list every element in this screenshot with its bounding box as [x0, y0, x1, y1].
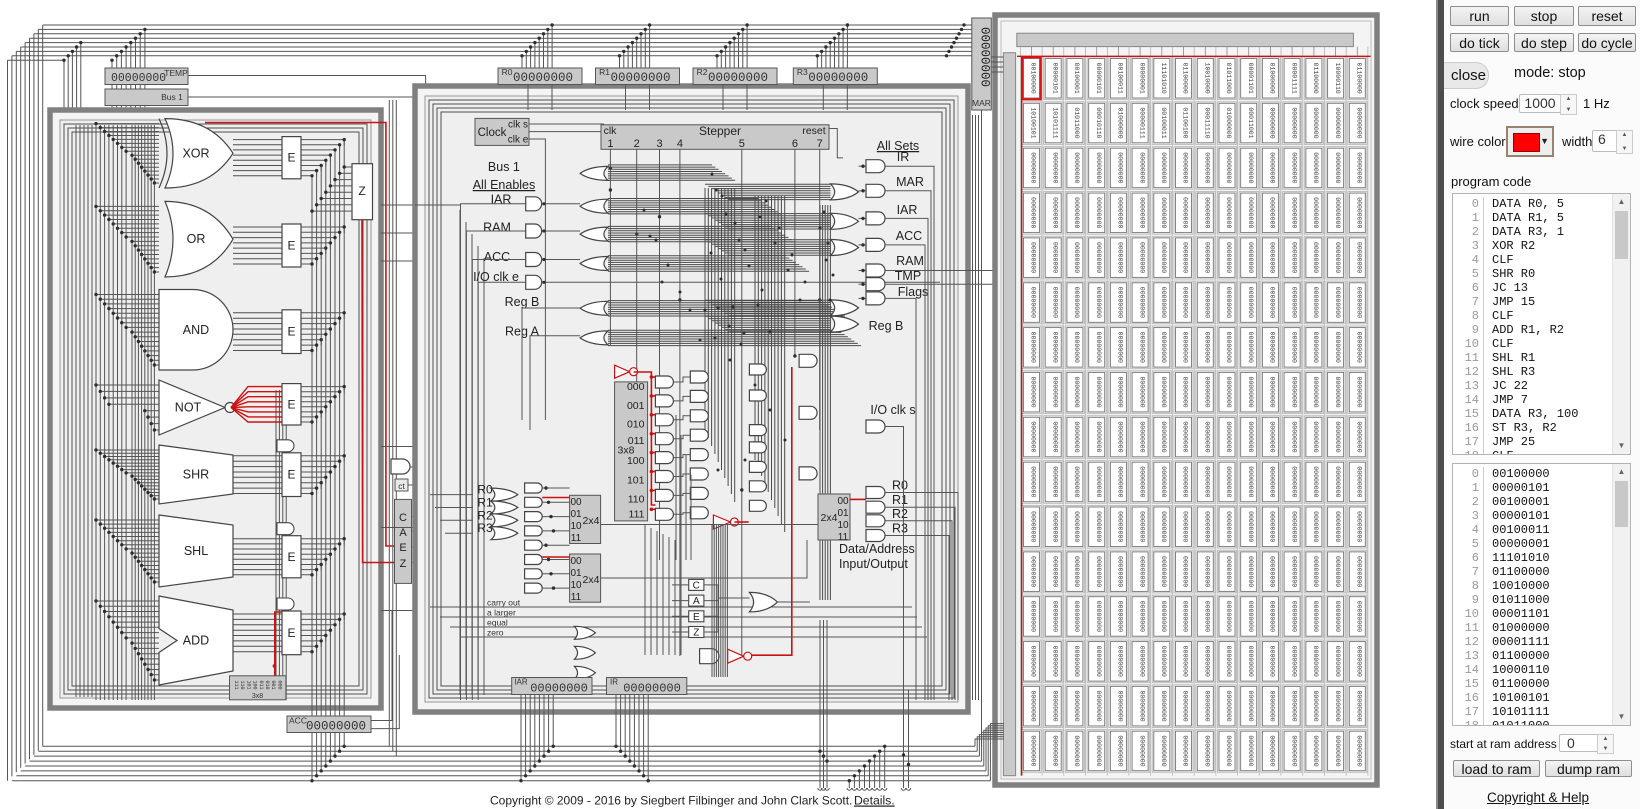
- svg-text:00000000: 00000000: [1117, 556, 1124, 587]
- svg-text:R2: R2: [892, 507, 908, 521]
- svg-text:01100000: 01100000: [1312, 63, 1319, 94]
- svg-text:00000000: 00000000: [1269, 376, 1276, 407]
- svg-text:00000000: 00000000: [1225, 690, 1232, 721]
- svg-text:00000000: 00000000: [1160, 690, 1167, 721]
- svg-text:00000000: 00000000: [1225, 242, 1232, 273]
- svg-text:00000000: 00000000: [1247, 376, 1254, 407]
- svg-text:R1: R1: [892, 493, 908, 507]
- svg-text:100: 100: [627, 455, 645, 467]
- svg-text:XOR: XOR: [182, 146, 209, 160]
- svg-text:00000000: 00000000: [1030, 690, 1037, 721]
- svg-text:00000000: 00000000: [1247, 287, 1254, 318]
- svg-text:00000000: 00000000: [1334, 332, 1341, 363]
- svg-text:00000000: 00000000: [1073, 197, 1080, 228]
- svg-text:00000000: 00000000: [1269, 152, 1276, 183]
- svg-text:00000000: 00000000: [1117, 690, 1124, 721]
- svg-text:00000000: 00000000: [1312, 376, 1319, 407]
- svg-text:00000000: 00000000: [1204, 376, 1211, 407]
- svg-text:101: 101: [627, 475, 645, 487]
- svg-text:00000000: 00000000: [1030, 152, 1037, 183]
- svg-text:00000000: 00000000: [1312, 556, 1319, 587]
- svg-text:00000000: 00000000: [610, 71, 670, 85]
- svg-text:AND: AND: [183, 323, 209, 337]
- svg-text:00000000: 00000000: [1225, 511, 1232, 542]
- svg-text:Reg B: Reg B: [505, 295, 540, 309]
- svg-text:R3: R3: [477, 521, 493, 535]
- svg-text:00000000: 00000000: [1312, 466, 1319, 497]
- svg-text:00000000: 00000000: [1138, 511, 1145, 542]
- svg-text:00000000: 00000000: [1182, 152, 1189, 183]
- svg-text:00000000: 00000000: [1138, 421, 1145, 452]
- svg-text:00000000: 00000000: [1247, 197, 1254, 228]
- svg-text:equal: equal: [487, 618, 508, 628]
- svg-text:00000000: 00000000: [1290, 646, 1297, 677]
- svg-text:00000000: 00000000: [1117, 421, 1124, 452]
- svg-text:00000000: 00000000: [1204, 466, 1211, 497]
- svg-text:00000000: 00000000: [1312, 421, 1319, 452]
- svg-text:00000000: 00000000: [978, 27, 992, 87]
- svg-text:2x4: 2x4: [583, 515, 600, 527]
- svg-text:R0: R0: [502, 67, 513, 77]
- svg-text:00000000: 00000000: [1225, 421, 1232, 452]
- svg-text:reset: reset: [802, 125, 825, 137]
- svg-text:00000000: 00000000: [1334, 107, 1341, 138]
- svg-text:00000000: 00000000: [1312, 152, 1319, 183]
- svg-text:A: A: [693, 596, 700, 607]
- svg-text:00000000: 00000000: [1117, 287, 1124, 318]
- svg-text:00011001: 00011001: [1247, 107, 1254, 138]
- svg-text:10: 10: [570, 521, 582, 532]
- svg-text:00000000: 00000000: [1030, 646, 1037, 677]
- svg-text:00000000: 00000000: [1030, 332, 1037, 363]
- svg-text:00000000: 00000000: [1269, 107, 1276, 138]
- svg-text:00000000: 00000000: [1269, 466, 1276, 497]
- svg-text:00000000: 00000000: [1051, 332, 1058, 363]
- svg-text:10101111: 10101111: [1051, 107, 1058, 138]
- svg-text:00000000: 00000000: [1073, 601, 1080, 632]
- svg-text:E: E: [287, 325, 295, 339]
- svg-text:E: E: [287, 550, 295, 564]
- svg-text:00000000: 00000000: [1138, 646, 1145, 677]
- svg-text:00000000: 00000000: [1356, 242, 1363, 273]
- svg-text:2x4: 2x4: [821, 512, 838, 524]
- svg-text:111: 111: [629, 509, 645, 521]
- svg-text:00000000: 00000000: [1247, 735, 1254, 766]
- svg-text:00000000: 00000000: [1073, 287, 1080, 318]
- svg-text:2: 2: [634, 138, 640, 150]
- svg-text:111: 111: [233, 680, 239, 689]
- svg-text:00000000: 00000000: [1204, 197, 1211, 228]
- svg-text:00000000: 00000000: [1138, 197, 1145, 228]
- svg-text:01100000: 01100000: [1182, 63, 1189, 94]
- svg-text:00000000: 00000000: [1312, 735, 1319, 766]
- svg-text:00000000: 00000000: [1225, 735, 1232, 766]
- svg-text:00000000: 00000000: [1095, 242, 1102, 273]
- svg-text:00000000: 00000000: [1051, 152, 1058, 183]
- svg-text:11: 11: [571, 533, 582, 544]
- svg-text:00000000: 00000000: [1312, 287, 1319, 318]
- svg-text:Flags: Flags: [898, 285, 929, 299]
- svg-text:00000000: 00000000: [1030, 511, 1037, 542]
- svg-text:00000000: 00000000: [1051, 197, 1058, 228]
- svg-text:00000000: 00000000: [623, 682, 681, 696]
- svg-text:00000000: 00000000: [1073, 735, 1080, 766]
- svg-text:00000000: 00000000: [1138, 376, 1145, 407]
- svg-text:00000000: 00000000: [1225, 466, 1232, 497]
- svg-text:00000000: 00000000: [1051, 735, 1058, 766]
- svg-text:zero: zero: [487, 628, 504, 638]
- svg-text:10000110: 10000110: [1334, 63, 1341, 94]
- svg-text:00000000: 00000000: [1204, 511, 1211, 542]
- svg-text:2x4: 2x4: [583, 574, 600, 586]
- svg-text:00000000: 00000000: [1051, 601, 1058, 632]
- svg-text:00000000: 00000000: [1138, 556, 1145, 587]
- svg-text:00000000: 00000000: [1138, 466, 1145, 497]
- svg-text:00000000: 00000000: [111, 72, 166, 85]
- svg-text:00000000: 00000000: [1073, 242, 1080, 273]
- svg-text:00000000: 00000000: [1204, 332, 1211, 363]
- svg-text:00000000: 00000000: [1247, 466, 1254, 497]
- svg-text:00000000: 00000000: [1030, 601, 1037, 632]
- svg-text:3: 3: [656, 138, 662, 150]
- svg-text:00000000: 00000000: [1095, 152, 1102, 183]
- svg-text:IR: IR: [610, 678, 618, 687]
- svg-text:3x8: 3x8: [252, 693, 263, 700]
- svg-text:00001111: 00001111: [1290, 63, 1297, 94]
- svg-text:00000000: 00000000: [1247, 646, 1254, 677]
- svg-text:01000000: 01000000: [1269, 63, 1276, 94]
- svg-text:00000000: 00000000: [1095, 287, 1102, 318]
- svg-text:RAM: RAM: [896, 254, 924, 268]
- svg-text:00000000: 00000000: [1073, 466, 1080, 497]
- svg-text:00000000: 00000000: [1073, 556, 1080, 587]
- svg-text:00000000: 00000000: [1117, 601, 1124, 632]
- svg-text:00000000: 00000000: [1356, 601, 1363, 632]
- svg-text:00000000: 00000000: [1269, 646, 1276, 677]
- svg-text:a larger: a larger: [487, 608, 516, 618]
- svg-text:E: E: [287, 626, 295, 640]
- svg-text:RAM: RAM: [483, 221, 511, 235]
- svg-text:OR: OR: [187, 232, 206, 246]
- svg-text:clk: clk: [604, 125, 618, 137]
- svg-text:00000000: 00000000: [1290, 376, 1297, 407]
- svg-text:E: E: [287, 239, 295, 253]
- svg-text:01000000: 01000000: [1225, 107, 1232, 138]
- svg-text:00000000: 00000000: [1095, 197, 1102, 228]
- svg-text:00000000: 00000000: [1269, 601, 1276, 632]
- svg-text:SHR: SHR: [183, 468, 209, 482]
- svg-text:Z: Z: [358, 184, 365, 198]
- svg-text:00000000: 00000000: [1247, 511, 1254, 542]
- svg-text:00000000: 00000000: [1356, 735, 1363, 766]
- svg-text:00000000: 00000000: [1095, 735, 1102, 766]
- svg-text:4: 4: [677, 138, 683, 150]
- svg-text:00000000: 00000000: [1204, 421, 1211, 452]
- svg-text:00000000: 00000000: [1290, 601, 1297, 632]
- svg-text:R0: R0: [477, 483, 493, 497]
- svg-text:Bus 1: Bus 1: [488, 160, 520, 174]
- svg-text:E: E: [287, 397, 295, 411]
- svg-text:00000000: 00000000: [1182, 511, 1189, 542]
- svg-text:00000000: 00000000: [1334, 197, 1341, 228]
- svg-text:00000000: 00000000: [1290, 197, 1297, 228]
- svg-text:00000000: 00000000: [530, 682, 588, 696]
- svg-text:00000000: 00000000: [1356, 332, 1363, 363]
- svg-text:00000000: 00000000: [1160, 646, 1167, 677]
- svg-text:00000000: 00000000: [1290, 466, 1297, 497]
- svg-text:00100001: 00100001: [1073, 63, 1080, 94]
- svg-text:00000000: 00000000: [1030, 421, 1037, 452]
- svg-text:01011000: 01011000: [1225, 63, 1232, 94]
- svg-text:00000000: 00000000: [1030, 197, 1037, 228]
- svg-text:Reg B: Reg B: [869, 319, 904, 333]
- svg-text:00000000: 00000000: [1182, 601, 1189, 632]
- svg-text:00000000: 00000000: [1160, 332, 1167, 363]
- svg-text:00000000: 00000000: [1117, 242, 1124, 273]
- svg-text:00011110: 00011110: [1204, 107, 1211, 138]
- svg-text:00000000: 00000000: [1030, 287, 1037, 318]
- svg-text:C: C: [693, 580, 700, 591]
- svg-text:5: 5: [739, 138, 745, 150]
- svg-text:All Enables: All Enables: [473, 178, 536, 192]
- svg-text:00000000: 00000000: [1095, 332, 1102, 363]
- svg-text:00000000: 00000000: [1117, 735, 1124, 766]
- svg-text:10: 10: [837, 520, 849, 531]
- svg-text:00000000: 00000000: [1334, 690, 1341, 721]
- svg-text:00100000: 00100000: [1030, 63, 1037, 94]
- svg-text:001: 001: [270, 680, 276, 689]
- svg-text:00000000: 00000000: [1247, 152, 1254, 183]
- svg-text:00000000: 00000000: [1356, 511, 1363, 542]
- svg-text:00000000: 00000000: [1095, 376, 1102, 407]
- svg-text:00000000: 00000000: [1117, 466, 1124, 497]
- svg-text:00000000: 00000000: [1356, 376, 1363, 407]
- svg-text:00000000: 00000000: [708, 71, 768, 85]
- svg-text:11101010: 11101010: [1160, 63, 1167, 94]
- svg-text:01: 01: [570, 509, 582, 520]
- svg-text:011: 011: [258, 680, 264, 689]
- svg-text:11: 11: [571, 592, 582, 603]
- svg-text:00000000: 00000000: [1160, 556, 1167, 587]
- svg-text:00000000: 00000000: [1247, 242, 1254, 273]
- svg-text:00000000: 00000000: [1095, 556, 1102, 587]
- svg-text:00000000: 00000000: [1334, 376, 1341, 407]
- svg-text:00000000: 00000000: [1182, 735, 1189, 766]
- svg-text:00: 00: [570, 497, 582, 508]
- svg-text:00000000: 00000000: [1073, 511, 1080, 542]
- svg-text:ADD: ADD: [183, 634, 209, 648]
- svg-text:00000101: 00000101: [1095, 63, 1102, 94]
- svg-text:00000000: 00000000: [1051, 690, 1058, 721]
- svg-text:00100011: 00100011: [1160, 107, 1167, 138]
- svg-text:00000000: 00000000: [1030, 466, 1037, 497]
- svg-text:00000101: 00000101: [1051, 63, 1058, 94]
- svg-text:NOT: NOT: [175, 401, 202, 415]
- svg-text:00000000: 00000000: [1160, 197, 1167, 228]
- svg-text:00000000: 00000000: [1117, 332, 1124, 363]
- svg-text:000: 000: [627, 381, 645, 393]
- svg-text:Z: Z: [693, 628, 699, 639]
- svg-text:00000000: 00000000: [1117, 511, 1124, 542]
- svg-text:00000111: 00000111: [1138, 107, 1145, 138]
- svg-text:00000000: 00000000: [1204, 242, 1211, 273]
- svg-text:00000000: 00000000: [1356, 466, 1363, 497]
- svg-text:carry out: carry out: [487, 598, 521, 608]
- svg-text:00000000: 00000000: [1290, 287, 1297, 318]
- svg-text:00000000: 00000000: [1204, 690, 1211, 721]
- svg-text:R1: R1: [599, 67, 610, 77]
- svg-text:IAR: IAR: [514, 678, 528, 687]
- svg-text:R3: R3: [892, 522, 908, 536]
- svg-text:TEMP: TEMP: [164, 68, 188, 78]
- svg-text:00000000: 00000000: [1269, 511, 1276, 542]
- svg-text:00000000: 00000000: [1334, 646, 1341, 677]
- svg-text:00000000: 00000000: [1051, 511, 1058, 542]
- svg-text:00000000: 00000000: [1269, 287, 1276, 318]
- svg-text:00000000: 00000000: [1312, 646, 1319, 677]
- svg-text:00000000: 00000000: [1051, 376, 1058, 407]
- svg-text:1: 1: [607, 138, 613, 150]
- svg-text:C: C: [399, 512, 407, 524]
- svg-text:00000000: 00000000: [1182, 197, 1189, 228]
- svg-text:00000000: 00000000: [1312, 690, 1319, 721]
- svg-text:00000000: 00000000: [1138, 287, 1145, 318]
- svg-text:00000000: 00000000: [1204, 601, 1211, 632]
- svg-text:00000000: 00000000: [1334, 556, 1341, 587]
- svg-text:00000000: 00000000: [1312, 242, 1319, 273]
- svg-text:Input/Output: Input/Output: [839, 557, 908, 571]
- svg-text:00000000: 00000000: [1290, 735, 1297, 766]
- svg-text:00000000: 00000000: [1356, 646, 1363, 677]
- svg-text:01: 01: [837, 508, 849, 519]
- svg-text:clk e: clk e: [508, 135, 529, 146]
- svg-text:100: 100: [252, 680, 258, 689]
- svg-text:00000000: 00000000: [1138, 735, 1145, 766]
- svg-text:00000000: 00000000: [1247, 690, 1254, 721]
- svg-text:00000000: 00000000: [1290, 242, 1297, 273]
- svg-text:00000000: 00000000: [1051, 287, 1058, 318]
- svg-text:MAR: MAR: [896, 175, 924, 189]
- svg-text:00000000: 00000000: [1204, 152, 1211, 183]
- svg-text:00001101: 00001101: [1247, 63, 1254, 94]
- svg-text:00000000: 00000000: [1356, 690, 1363, 721]
- svg-text:Stepper: Stepper: [699, 124, 741, 138]
- svg-text:7: 7: [817, 138, 823, 150]
- svg-text:00000000: 00000000: [1182, 332, 1189, 363]
- svg-text:E: E: [287, 468, 295, 482]
- svg-text:00000000: 00000000: [1334, 466, 1341, 497]
- svg-text:00000000: 00000000: [1051, 242, 1058, 273]
- svg-text:ACC: ACC: [484, 250, 510, 264]
- svg-text:10: 10: [570, 580, 582, 591]
- svg-text:00000000: 00000000: [1247, 601, 1254, 632]
- svg-text:00000000: 00000000: [1073, 421, 1080, 452]
- svg-text:01000000: 01000000: [1117, 107, 1124, 138]
- svg-text:00000000: 00000000: [1290, 556, 1297, 587]
- svg-text:00000000: 00000000: [1138, 601, 1145, 632]
- svg-text:00000000: 00000000: [513, 71, 573, 85]
- svg-text:R2: R2: [697, 67, 708, 77]
- svg-text:3x8: 3x8: [618, 445, 635, 457]
- svg-text:00000000: 00000000: [1356, 421, 1363, 452]
- svg-text:00000000: 00000000: [1269, 197, 1276, 228]
- svg-text:00000000: 00000000: [1138, 690, 1145, 721]
- svg-text:00000000: 00000000: [1051, 466, 1058, 497]
- svg-text:R3: R3: [797, 67, 808, 77]
- svg-text:00000000: 00000000: [1160, 601, 1167, 632]
- svg-text:00000000: 00000000: [1290, 421, 1297, 452]
- svg-text:00000000: 00000000: [1225, 556, 1232, 587]
- svg-text:00000000: 00000000: [1051, 646, 1058, 677]
- svg-text:00000000: 00000000: [1182, 690, 1189, 721]
- svg-text:00000000: 00000000: [808, 71, 868, 85]
- svg-text:00000000: 00000000: [1247, 556, 1254, 587]
- svg-text:00000000: 00000000: [1138, 332, 1145, 363]
- svg-text:clk s: clk s: [508, 120, 528, 131]
- svg-text:E: E: [287, 151, 295, 165]
- svg-text:00000000: 00000000: [1095, 421, 1102, 452]
- svg-text:00000000: 00000000: [1225, 197, 1232, 228]
- svg-text:00000000: 00000000: [1334, 242, 1341, 273]
- svg-text:00000000: 00000000: [1073, 332, 1080, 363]
- svg-text:00000000: 00000000: [1182, 421, 1189, 452]
- svg-text:010: 010: [264, 680, 270, 689]
- svg-text:01100100: 01100100: [1182, 107, 1189, 138]
- svg-text:00000000: 00000000: [1269, 332, 1276, 363]
- svg-text:00000000: 00000000: [1160, 466, 1167, 497]
- svg-text:IR: IR: [897, 150, 910, 164]
- svg-text:I/O clk s: I/O clk s: [870, 403, 915, 417]
- svg-text:01: 01: [570, 568, 582, 579]
- svg-text:00000000: 00000000: [1182, 646, 1189, 677]
- svg-text:Copyright © 2009 - 2016 by Sie: Copyright © 2009 - 2016 by Siegbert Filb…: [490, 794, 852, 808]
- svg-text:00000000: 00000000: [1269, 556, 1276, 587]
- svg-text:R2: R2: [477, 508, 493, 522]
- svg-text:00000000: 00000000: [1269, 735, 1276, 766]
- svg-text:00000000: 00000000: [1290, 511, 1297, 542]
- svg-text:010: 010: [627, 419, 645, 431]
- svg-text:00000000: 00000000: [1182, 466, 1189, 497]
- svg-text:01011000: 01011000: [1073, 107, 1080, 138]
- svg-text:00000000: 00000000: [306, 720, 366, 734]
- svg-text:00: 00: [837, 496, 849, 507]
- svg-text:00000000: 00000000: [1225, 646, 1232, 677]
- svg-text:00000001: 00000001: [1138, 63, 1145, 94]
- svg-text:00000000: 00000000: [1290, 107, 1297, 138]
- svg-text:E: E: [693, 612, 700, 623]
- svg-text:A: A: [399, 527, 407, 539]
- svg-text:00000000: 00000000: [1356, 197, 1363, 228]
- svg-text:00000000: 00000000: [1051, 421, 1058, 452]
- svg-text:ct: ct: [398, 481, 405, 491]
- svg-text:IAR: IAR: [897, 203, 918, 217]
- svg-text:00000000: 00000000: [1312, 511, 1319, 542]
- svg-text:00000000: 00000000: [1204, 556, 1211, 587]
- svg-text:Bus 1: Bus 1: [161, 92, 183, 102]
- svg-text:00000000: 00000000: [1247, 421, 1254, 452]
- svg-text:E: E: [399, 542, 406, 554]
- svg-text:Z: Z: [400, 558, 407, 570]
- svg-text:00000000: 00000000: [1117, 152, 1124, 183]
- svg-text:001: 001: [627, 400, 645, 412]
- svg-text:00000000: 00000000: [1182, 242, 1189, 273]
- svg-text:00000000: 00000000: [1204, 287, 1211, 318]
- svg-text:00000000: 00000000: [1051, 556, 1058, 587]
- svg-text:MAR: MAR: [972, 98, 991, 108]
- svg-text:00000000: 00000000: [1269, 421, 1276, 452]
- svg-text:IAR: IAR: [491, 193, 512, 207]
- svg-text:00000000: 00000000: [1225, 332, 1232, 363]
